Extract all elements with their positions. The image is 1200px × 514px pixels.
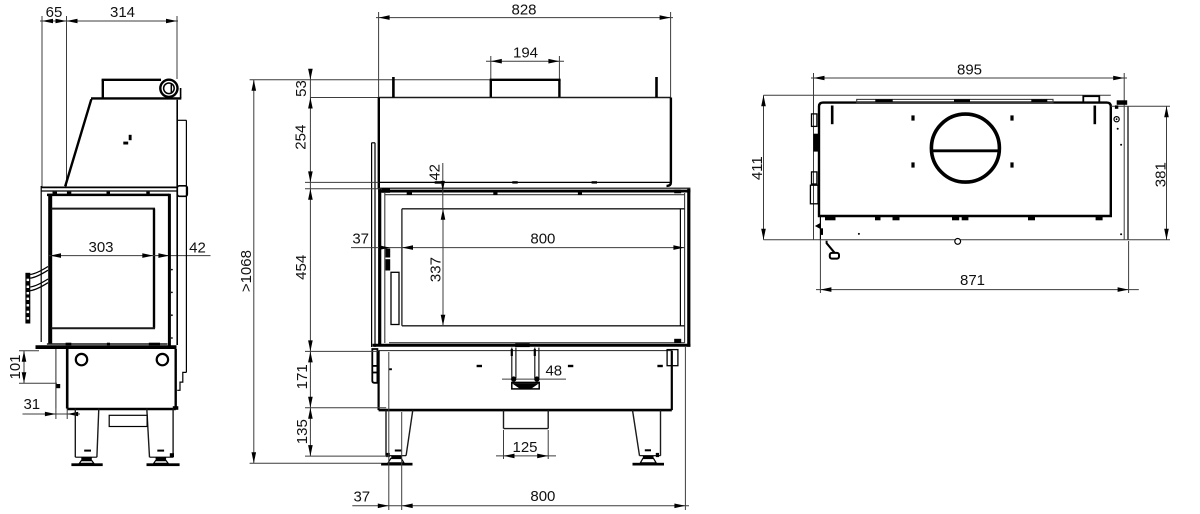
svg-text:314: 314	[110, 4, 135, 21]
svg-text:37: 37	[353, 488, 370, 505]
svg-text:31: 31	[23, 396, 40, 413]
svg-text:194: 194	[513, 44, 538, 61]
svg-text:37: 37	[352, 231, 369, 248]
svg-text:53: 53	[293, 80, 310, 97]
svg-text:42: 42	[427, 164, 444, 181]
svg-text:171: 171	[294, 364, 311, 389]
svg-text:800: 800	[530, 488, 555, 505]
svg-text:48: 48	[545, 363, 562, 380]
svg-text:454: 454	[293, 255, 310, 280]
svg-text:101: 101	[7, 354, 24, 379]
svg-text:828: 828	[511, 1, 536, 18]
svg-text:254: 254	[292, 125, 309, 150]
svg-text:42: 42	[189, 239, 206, 256]
svg-text:135: 135	[294, 419, 311, 444]
svg-text:411: 411	[749, 156, 766, 180]
svg-text:65: 65	[46, 4, 63, 21]
svg-text:871: 871	[960, 272, 985, 289]
svg-text:303: 303	[88, 239, 113, 256]
svg-text:381: 381	[1152, 162, 1169, 187]
svg-text:800: 800	[530, 230, 555, 247]
svg-text:337: 337	[427, 257, 444, 282]
svg-text:125: 125	[512, 439, 537, 456]
svg-text:>1068: >1068	[238, 250, 255, 292]
svg-text:895: 895	[957, 61, 982, 78]
